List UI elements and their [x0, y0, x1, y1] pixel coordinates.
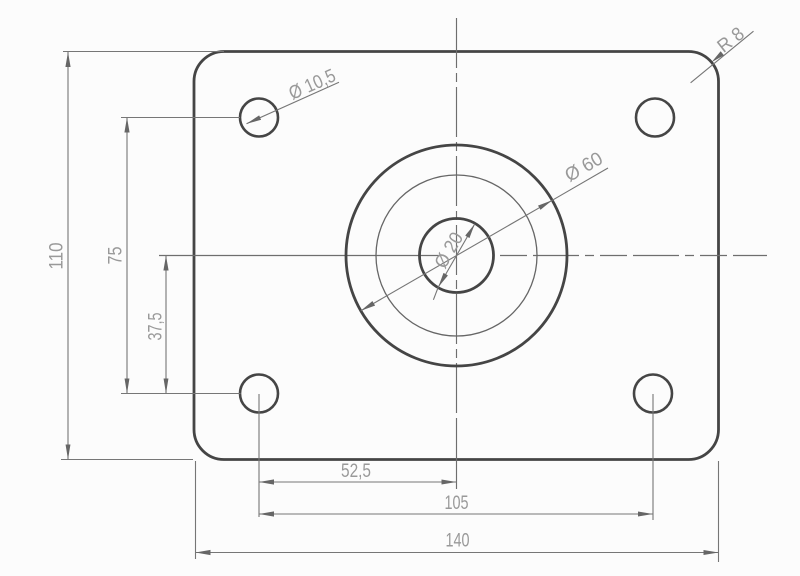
svg-text:75: 75 — [106, 247, 127, 265]
svg-text:37,5: 37,5 — [146, 313, 167, 341]
svg-text:110: 110 — [47, 243, 68, 270]
svg-text:105: 105 — [445, 493, 469, 514]
svg-text:52,5: 52,5 — [341, 461, 371, 482]
svg-text:140: 140 — [446, 531, 470, 552]
